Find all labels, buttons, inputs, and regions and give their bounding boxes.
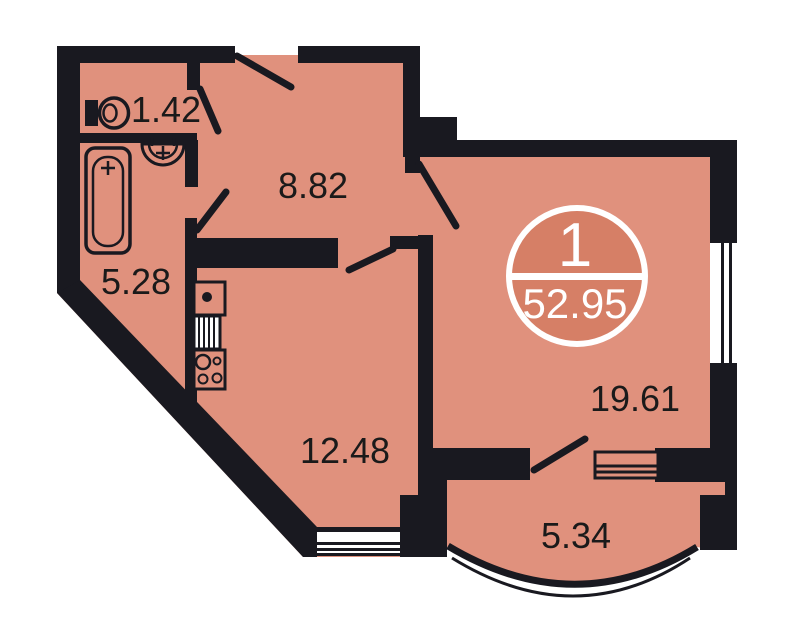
badge-total-area: 52.95 bbox=[522, 280, 627, 327]
room-label-wc: 1.42 bbox=[131, 89, 201, 130]
wall-bath-right-upper bbox=[185, 140, 198, 187]
wall-right-above-window bbox=[710, 155, 737, 243]
toilet-icon bbox=[85, 98, 129, 128]
wall-step-notch bbox=[415, 117, 457, 157]
window-right bbox=[710, 243, 737, 363]
stove-burner-1 bbox=[196, 355, 210, 369]
window-bottom bbox=[317, 527, 400, 556]
floor-plan-page: 1 52.95 1.42 8.82 5.28 12.48 19.61 5.34 bbox=[0, 0, 800, 638]
wall-top-left bbox=[57, 46, 235, 63]
wall-balcony-left bbox=[400, 495, 447, 557]
toilet-tank bbox=[85, 100, 98, 126]
room-label-balcony: 5.34 bbox=[541, 515, 611, 556]
stove-burner-3 bbox=[199, 375, 208, 384]
wall-wc-bottom bbox=[80, 133, 197, 143]
wall-living-left bbox=[418, 235, 433, 448]
radiator-balcony-window bbox=[595, 452, 658, 478]
room-label-living-room: 19.61 bbox=[590, 378, 680, 419]
room-label-bathroom: 5.28 bbox=[101, 261, 171, 302]
stove-burner-2 bbox=[214, 358, 221, 365]
window-bottom-pane-1 bbox=[317, 532, 400, 542]
kitchen-sink-drain bbox=[202, 292, 212, 302]
unit-badge: 1 52.95 bbox=[509, 208, 645, 344]
wall-livingroom-top bbox=[457, 140, 737, 157]
room-label-hallway: 8.82 bbox=[278, 165, 348, 206]
wall-top-right bbox=[298, 46, 420, 63]
badge-unit-number: 1 bbox=[558, 211, 592, 280]
wall-living-bottom-left bbox=[418, 448, 530, 480]
window-bottom-pane-2 bbox=[317, 545, 400, 548]
bathtub-icon bbox=[86, 148, 130, 253]
kitchen-counter-icon bbox=[194, 282, 225, 389]
kitchen-drainer bbox=[194, 316, 220, 349]
window-right-mullion-1 bbox=[721, 243, 724, 363]
entrance-doorway-gap bbox=[235, 46, 298, 55]
stove-burner-4 bbox=[213, 374, 222, 383]
window-bottom-pane-3 bbox=[317, 551, 400, 553]
floor-plan-drawing: 1 52.95 1.42 8.82 5.28 12.48 19.61 5.34 bbox=[0, 0, 800, 638]
room-label-kitchen-living: 12.48 bbox=[300, 430, 390, 471]
wall-hall-bottom bbox=[185, 238, 338, 268]
window-right-mullion-2 bbox=[729, 243, 732, 363]
wall-living-bottom-right bbox=[655, 448, 737, 482]
wall-left bbox=[57, 46, 80, 293]
wall-balcony-left-bridge bbox=[418, 480, 447, 497]
toilet-bowl-inner bbox=[104, 105, 117, 122]
wall-wc-right bbox=[187, 62, 200, 90]
